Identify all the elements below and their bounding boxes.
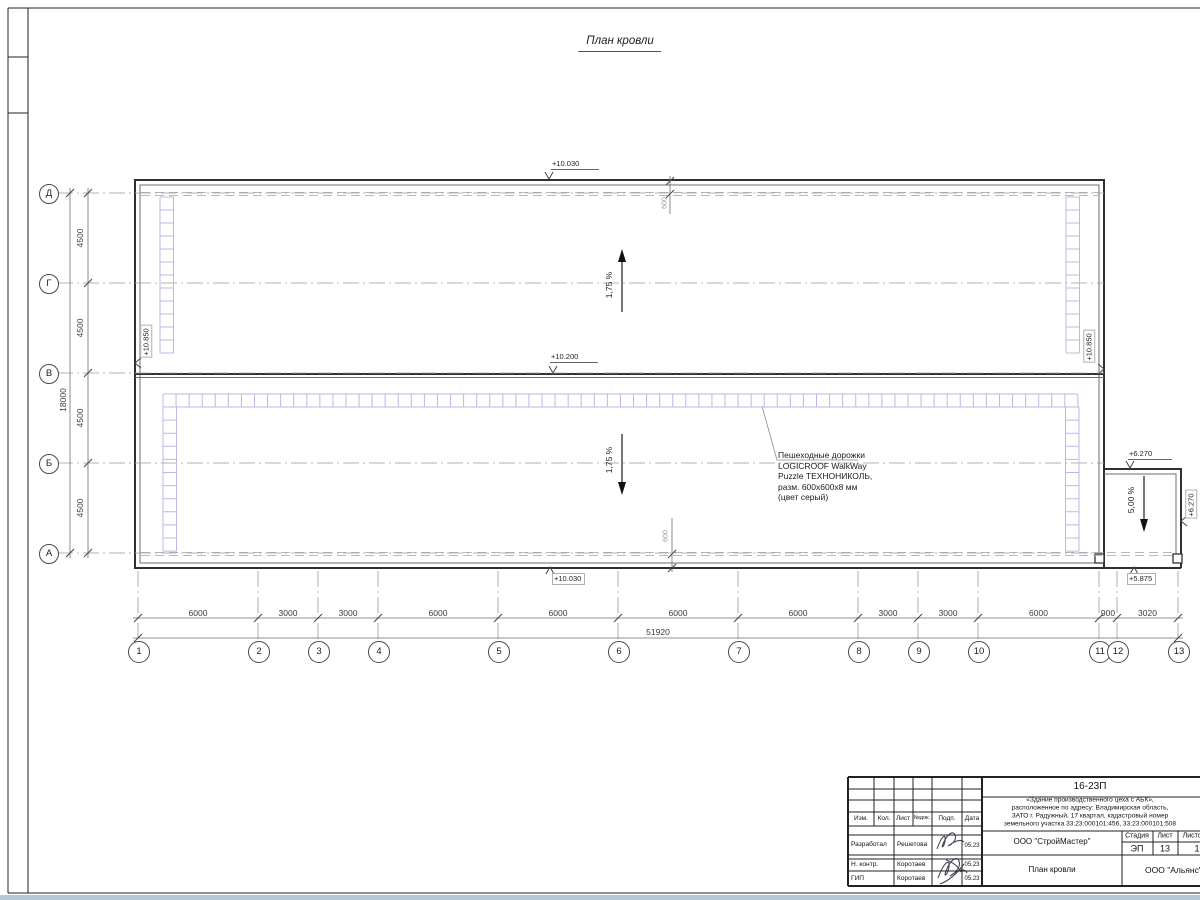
dim-label: 3000: [339, 609, 358, 618]
elevation-roof-high-top: +10.030: [551, 159, 599, 170]
tb-doc-code: 16-23П: [1074, 782, 1107, 792]
dim-label: 3000: [279, 609, 298, 618]
axis-bubble: Г: [39, 274, 59, 294]
tb-sheet-label: Лист: [1157, 833, 1172, 840]
axis-bubble: 12: [1107, 641, 1129, 663]
axis-bubble: Б: [39, 454, 59, 474]
elevation-roof-valley: +10.200: [550, 352, 598, 363]
slope-label-upper: 1,75 %: [605, 272, 614, 298]
tb-stage-label: Стадия: [1125, 833, 1149, 840]
drawing-sheet: План кровли +10.030 +10.200 +10.030 +5.8…: [0, 0, 1200, 900]
dim-label: 3020: [1138, 609, 1157, 618]
dim-label: 900: [1101, 609, 1115, 618]
dim-label: 3000: [939, 609, 958, 618]
tb-name: Коротаев: [897, 876, 925, 883]
tb-header-ndok: №док.: [914, 816, 930, 822]
axis-bubble: 1: [128, 641, 150, 663]
dim-label: 4500: [76, 499, 85, 518]
tb-header-list: Лист: [896, 816, 910, 823]
tb-doc-title: План кровли: [1028, 866, 1075, 874]
slope-arrow-lower: [618, 434, 626, 495]
tb-date: 05.23: [964, 862, 979, 868]
axis-bubble: 2: [248, 641, 270, 663]
tb-role: ГИП: [851, 876, 864, 883]
slope-arrow-canopy: [1140, 476, 1148, 532]
tb-stage-value: ЭП: [1131, 845, 1144, 854]
elevation-parapet-right: +10.850: [1083, 329, 1095, 362]
tb-sheets-label: Листов: [1183, 833, 1200, 840]
column-marker: [1173, 554, 1182, 563]
walkway-strip: [1066, 197, 1080, 353]
slope-arrow-upper: [618, 249, 626, 312]
page-title: План кровли: [578, 36, 661, 52]
axis-bubble: А: [39, 544, 59, 564]
walkway-strip: [1066, 407, 1080, 551]
annotation-line: LOGICROOF WalkWay: [778, 461, 872, 472]
offset-600-label-bottom: 600: [663, 530, 670, 542]
elevation-canopy-right: +6.270: [1185, 489, 1197, 518]
axis-bubble: 6: [608, 641, 630, 663]
tb-sheet-value: 13: [1160, 845, 1170, 854]
offset-600-label-top: 600: [662, 197, 669, 209]
dim-total-label: 51920: [646, 628, 670, 637]
axis-bubble: Д: [39, 184, 59, 204]
tb-date: 05.23: [964, 843, 979, 849]
tb-name: Решетова: [897, 842, 927, 849]
dim-label: 4500: [76, 229, 85, 248]
tb-header-data: Дата: [965, 816, 979, 823]
tb-date: 05.23: [964, 876, 979, 882]
dim-label: 4500: [76, 409, 85, 428]
tb-company: ООО "СтройМастер": [1013, 838, 1090, 846]
tb-header-podp: Подп.: [938, 816, 955, 823]
walkway-annotation: Пешеходные дорожки LOGICROOF WalkWay Puz…: [778, 450, 872, 503]
dim-label: 6000: [789, 609, 808, 618]
tb-company2: ООО "Альянс": [1145, 866, 1200, 875]
dim-label: 6000: [1029, 609, 1048, 618]
walkway-strip: [163, 394, 1078, 407]
building-outline: [135, 180, 1104, 568]
slope-label-lower: 1,75 %: [605, 447, 614, 473]
tb-role: Н. контр.: [851, 862, 878, 869]
axis-bubble: 9: [908, 641, 930, 663]
axis-bubble: 5: [488, 641, 510, 663]
axis-bubble: 3: [308, 641, 330, 663]
tb-description: расположенное по адресу: Владимирская об…: [1012, 806, 1169, 813]
dim-label: 3000: [879, 609, 898, 618]
elevation-roof-high-bottom: +10.030: [552, 573, 585, 585]
axis-bubble: 10: [968, 641, 990, 663]
annotation-line: разм. 600х600х8 мм: [778, 482, 872, 493]
slope-label-canopy: 5,00 %: [1127, 487, 1136, 513]
annotation-line: Puzzle ТЕХНОНИКОЛЬ,: [778, 471, 872, 482]
walkway-strip: [163, 407, 177, 551]
annotation-line: (цвет серый): [778, 492, 872, 503]
tb-header-izm: Изм.: [854, 816, 868, 823]
dim-label: 6000: [549, 609, 568, 618]
axis-bubble: 13: [1168, 641, 1190, 663]
sheet-frame: [0, 8, 1200, 900]
dim-label: 6000: [429, 609, 448, 618]
dim-total-label: 18000: [59, 388, 68, 412]
tb-description: ЗАТО г. Радужный, 17 квартал, кадастровы…: [1012, 814, 1169, 821]
tb-role: Разработал: [851, 842, 887, 849]
dim-label: 6000: [189, 609, 208, 618]
tb-description: земельного участка 33:23:000101:456, 33:…: [1004, 822, 1176, 829]
tb-sheets-value: 1: [1194, 845, 1199, 854]
canopy-outline: [1095, 469, 1182, 568]
tb-name: Коротаев: [897, 862, 925, 869]
dim-label: 6000: [669, 609, 688, 618]
elevation-parapet-left: +10.850: [140, 324, 152, 357]
axis-bubble: 4: [368, 641, 390, 663]
axis-bubble: 8: [848, 641, 870, 663]
dim-label: 4500: [76, 319, 85, 338]
elevation-canopy-top: +6.270: [1128, 449, 1172, 460]
tb-description: «Здание производственного цеха с АБК»,: [1026, 798, 1154, 805]
axis-bubble: 7: [728, 641, 750, 663]
walkway-strip: [160, 197, 174, 353]
annotation-line: Пешеходные дорожки: [778, 450, 872, 461]
axis-bubble: В: [39, 364, 59, 384]
elevation-canopy-edge: +5.875: [1127, 573, 1156, 585]
tb-header-kol: Кол.: [878, 816, 891, 823]
roof-plan-drawing: [0, 0, 1200, 900]
